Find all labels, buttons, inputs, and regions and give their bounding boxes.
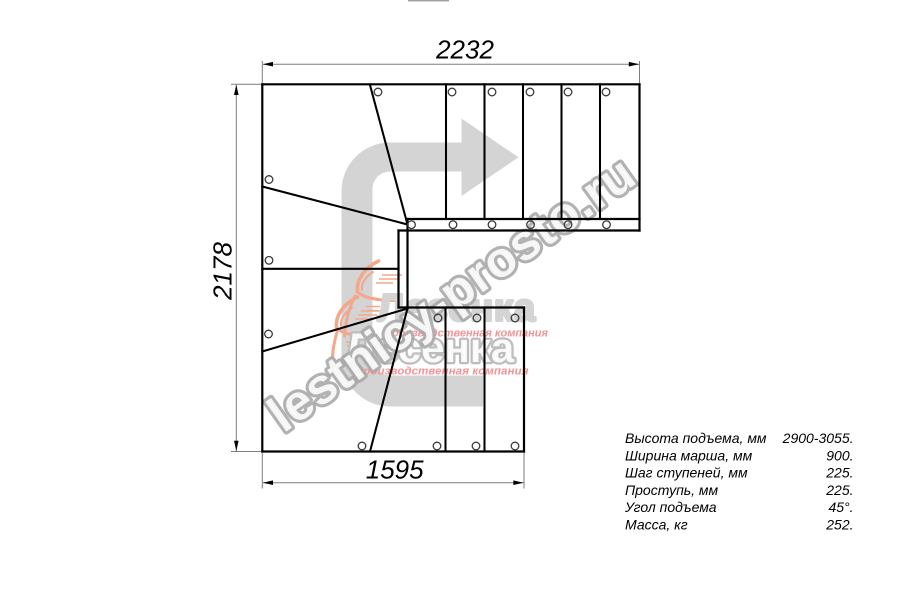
svg-text:252.: 252.: [825, 517, 853, 533]
svg-text:225.: 225.: [825, 482, 853, 498]
svg-text:Проступь, мм: Проступь, мм: [625, 482, 719, 498]
svg-text:Ширина марша, мм: Ширина марша, мм: [625, 447, 753, 463]
svg-text:225.: 225.: [825, 465, 853, 481]
svg-text:Высота подъема, мм: Высота подъема, мм: [625, 430, 767, 446]
svg-text:1595: 1595: [366, 455, 424, 485]
svg-text:Шаг ступеней, мм: Шаг ступеней, мм: [625, 465, 748, 481]
svg-text:2232: 2232: [435, 35, 494, 65]
svg-text:Масса, кг: Масса, кг: [625, 517, 688, 533]
svg-text:2900-3055.: 2900-3055.: [782, 430, 854, 446]
svg-text:45°.: 45°.: [828, 499, 853, 515]
svg-text:Угол подъема: Угол подъема: [624, 499, 717, 515]
svg-text:2178: 2178: [208, 242, 238, 301]
svg-text:900.: 900.: [826, 447, 853, 463]
